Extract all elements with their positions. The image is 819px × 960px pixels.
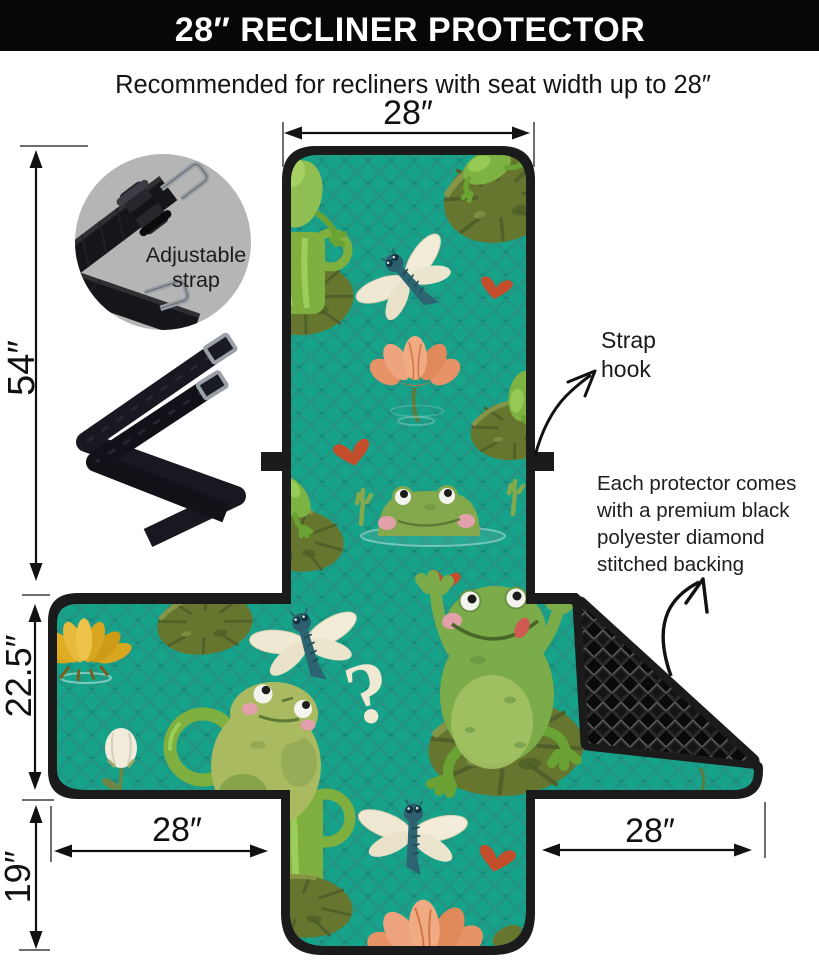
svg-text:28″: 28″	[152, 811, 202, 849]
svg-text:28″: 28″	[383, 94, 433, 132]
svg-text:Each protector comes: Each protector comes	[597, 472, 796, 495]
svg-text:28″ RECLINER PROTECTOR: 28″ RECLINER PROTECTOR	[175, 11, 646, 49]
svg-text:stitched backing: stitched backing	[597, 553, 744, 576]
svg-text:19″: 19″	[0, 850, 38, 903]
svg-text:polyester diamond: polyester diamond	[597, 526, 765, 549]
svg-text:22.5″: 22.5″	[0, 634, 39, 717]
svg-text:strap: strap	[172, 268, 220, 292]
svg-text:Adjustable: Adjustable	[146, 243, 246, 267]
svg-text:hook: hook	[601, 356, 651, 382]
svg-text:28″: 28″	[625, 812, 675, 850]
svg-text:with a premium black: with a premium black	[596, 499, 790, 522]
svg-text:Strap: Strap	[601, 327, 656, 353]
